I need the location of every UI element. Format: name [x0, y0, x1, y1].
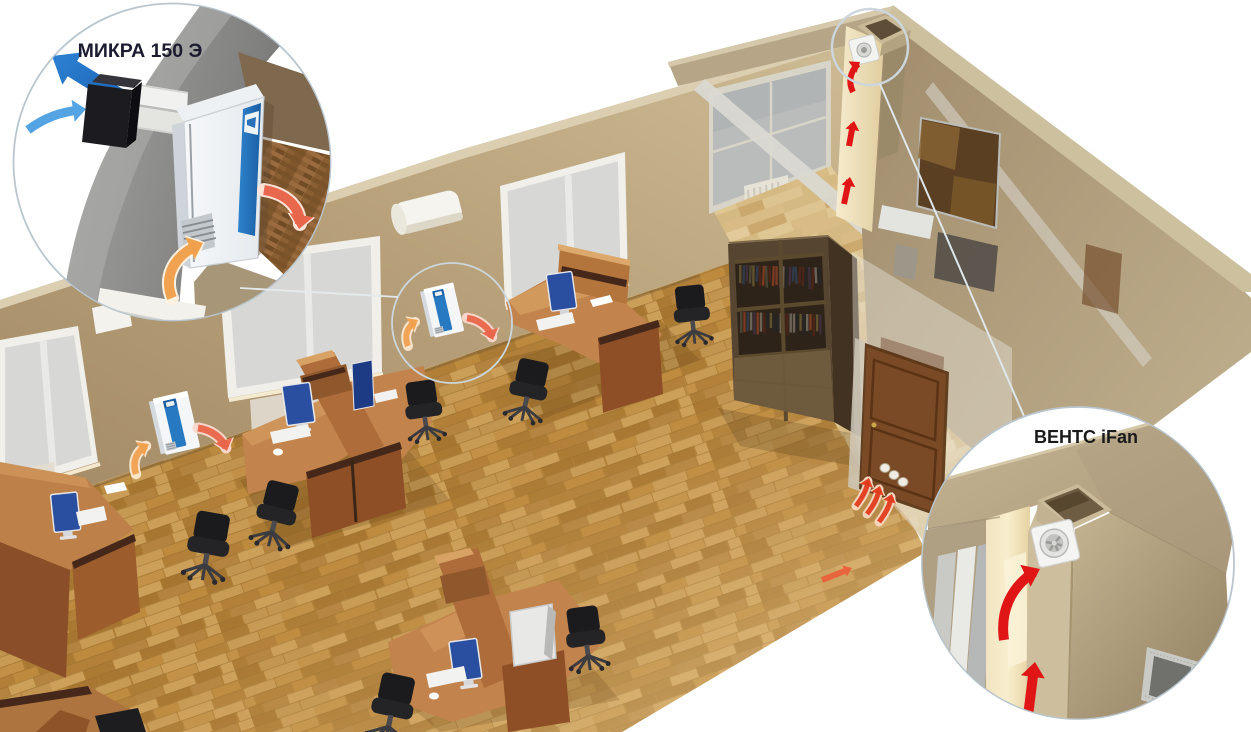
svg-text:ВЕНТС iFan: ВЕНТС iFan — [1034, 427, 1138, 447]
svg-text:МИКРА 150 Э: МИКРА 150 Э — [78, 40, 203, 62]
